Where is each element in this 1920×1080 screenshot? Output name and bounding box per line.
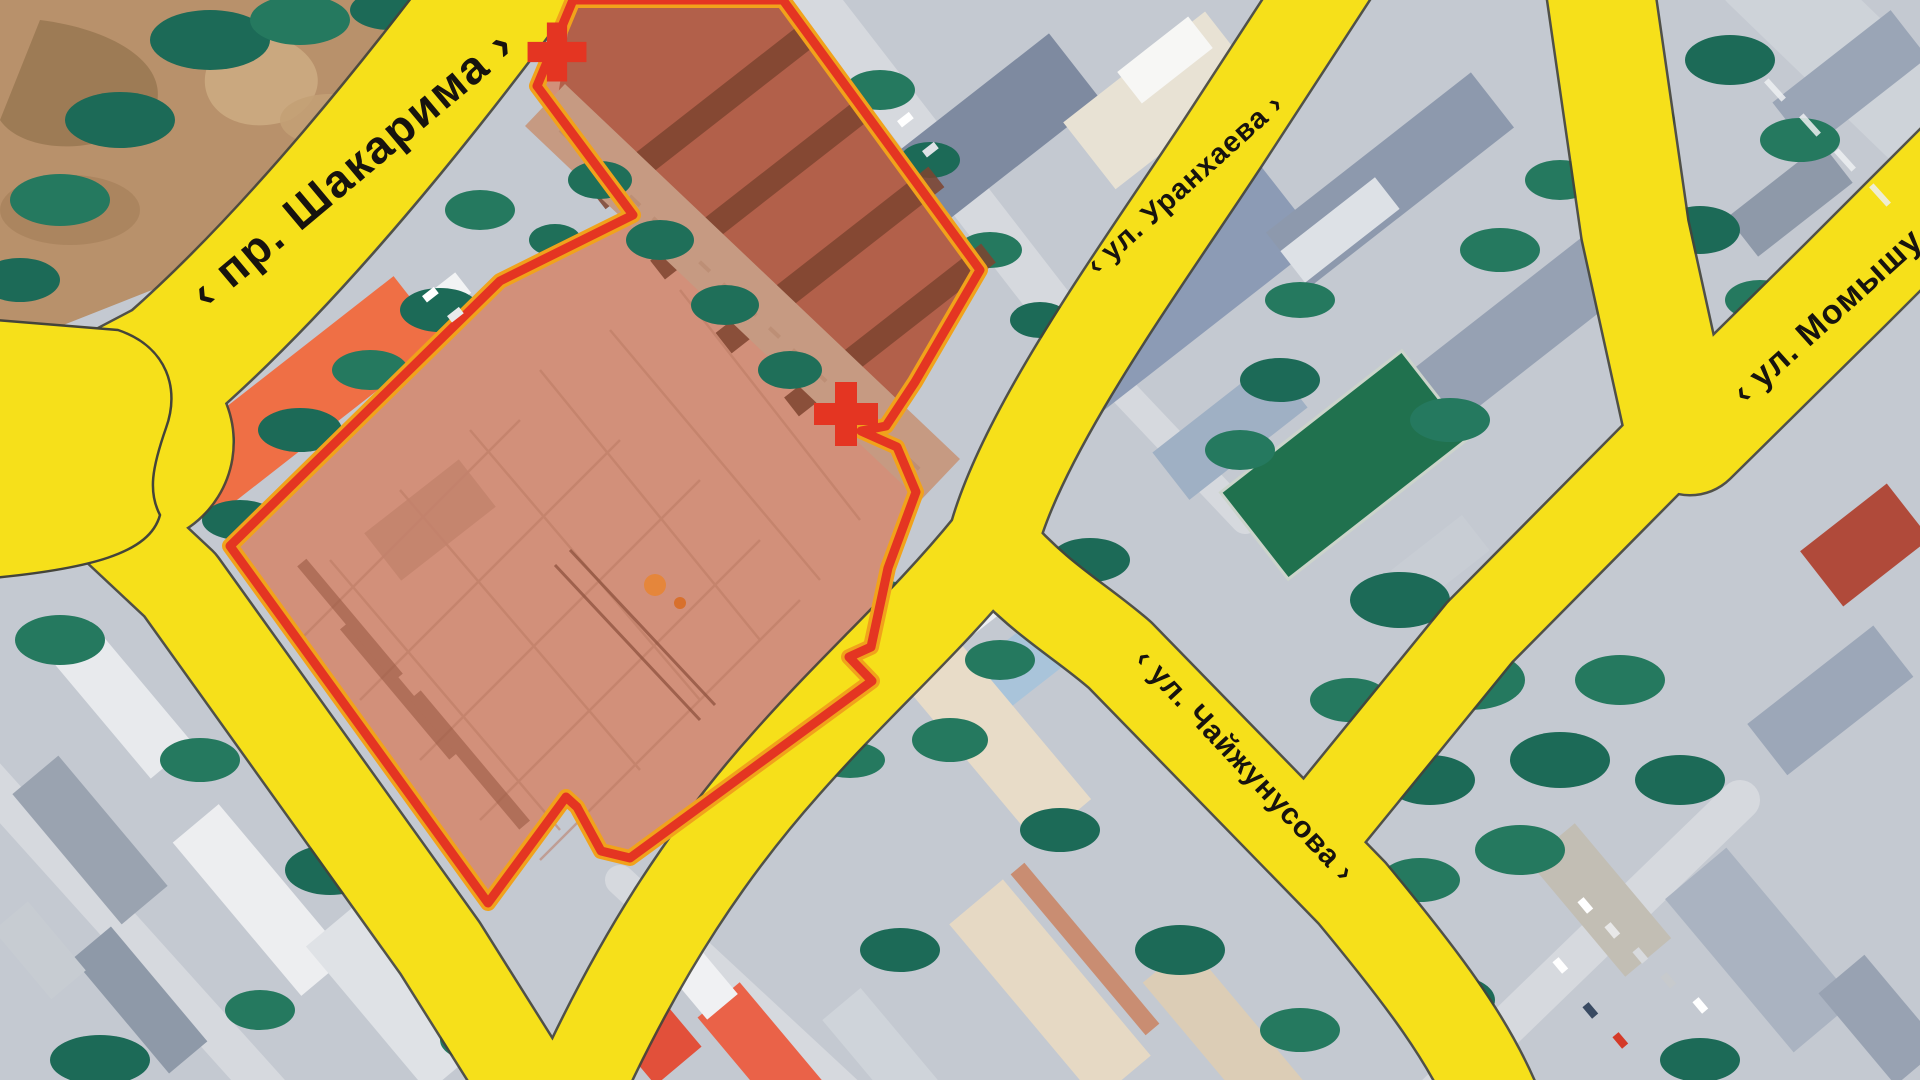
- crane-spot: [674, 597, 686, 609]
- crane-spot: [644, 574, 666, 596]
- satellite-map: ‹ пр. Шакарима › ‹ ул. Уранхаева › ‹ ул.…: [0, 0, 1920, 1080]
- satellite-map-canvas: ‹ пр. Шакарима › ‹ ул. Уранхаева › ‹ ул.…: [0, 0, 1920, 1080]
